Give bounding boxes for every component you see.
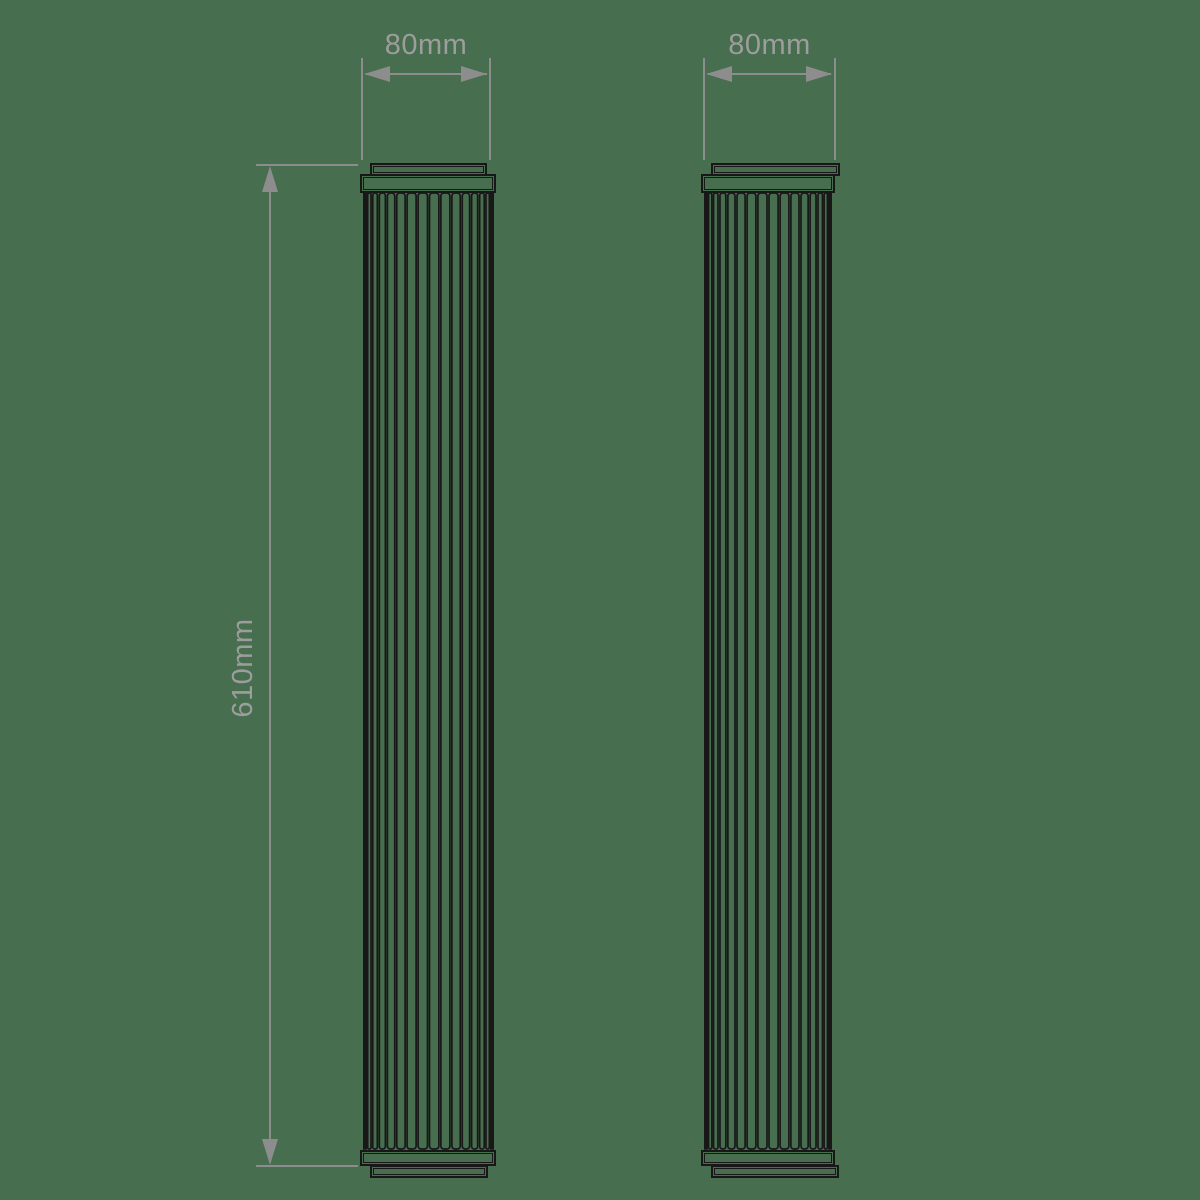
right-top-band bbox=[701, 174, 835, 193]
left-bottom-foot-inner-line bbox=[373, 1168, 485, 1175]
width-right-extension-line-b bbox=[834, 58, 836, 160]
dimension-arrow-up-icon bbox=[262, 166, 278, 192]
dimension-arrow-down-icon bbox=[262, 1139, 278, 1165]
technical-drawing: 610mm 80mm 80mm bbox=[0, 0, 1200, 1200]
left-top-band bbox=[360, 174, 496, 193]
right-bottom-band bbox=[701, 1150, 835, 1166]
right-top-band-inner-line bbox=[704, 177, 832, 190]
dimension-arrow-left-icon bbox=[364, 66, 390, 82]
left-bottom-band bbox=[360, 1150, 496, 1166]
width-left-extension-line-a bbox=[361, 58, 363, 160]
width-left-dimension-label: 80mm bbox=[361, 30, 491, 60]
width-left-extension-line-b bbox=[489, 58, 491, 160]
right-bottom-band-inner-line bbox=[704, 1153, 832, 1163]
dimension-arrow-right-icon bbox=[806, 66, 832, 82]
width-right-dimension-label: 80mm bbox=[704, 30, 835, 60]
right-bottom-foot bbox=[711, 1165, 839, 1178]
height-extension-line-bottom bbox=[256, 1165, 358, 1167]
left-bottom-band-inner-line bbox=[363, 1153, 493, 1163]
right-top-cap-inner-line bbox=[714, 166, 837, 173]
left-top-cap-inner-line bbox=[373, 166, 484, 173]
height-dimension-line bbox=[269, 170, 271, 1162]
left-fluted-glass bbox=[363, 192, 494, 1150]
dimension-arrow-left-icon bbox=[706, 66, 732, 82]
width-right-extension-line-a bbox=[703, 58, 705, 160]
left-bottom-foot bbox=[370, 1165, 488, 1178]
right-bottom-foot-inner-line bbox=[714, 1168, 836, 1175]
height-dimension-label: 610mm bbox=[228, 598, 258, 738]
left-top-band-inner-line bbox=[363, 177, 493, 190]
dimension-arrow-right-icon bbox=[461, 66, 487, 82]
right-fluted-glass bbox=[704, 192, 832, 1150]
